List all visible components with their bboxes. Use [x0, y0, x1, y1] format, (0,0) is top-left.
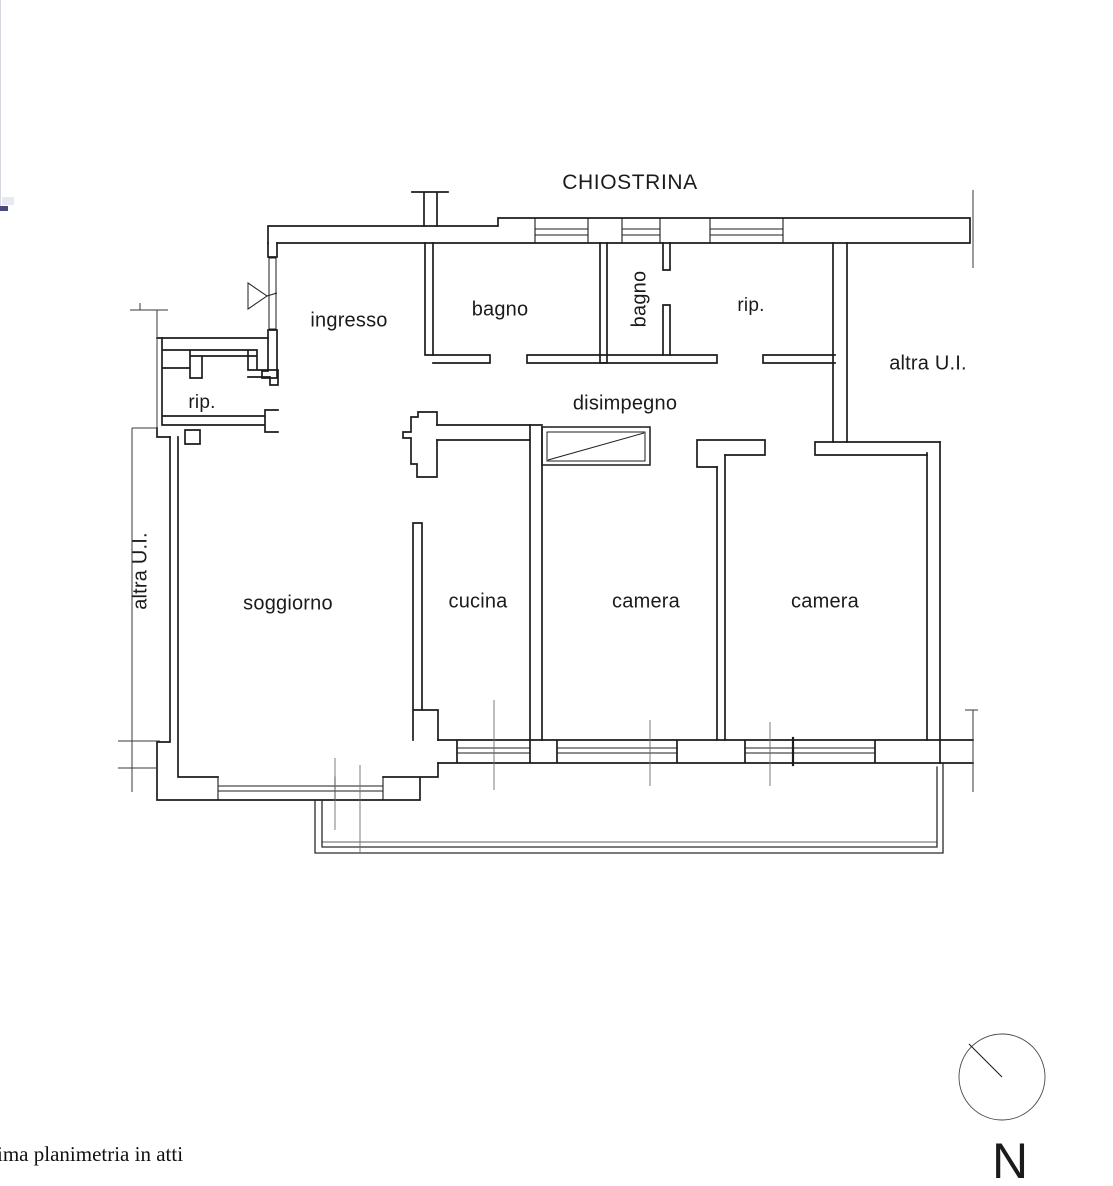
camera1-window [557, 748, 677, 753]
cucina-pilaster [403, 412, 437, 477]
rip-left-room [162, 338, 278, 432]
cucina-top-wall [437, 425, 542, 440]
room-label-rip-top: rip. [737, 295, 764, 317]
room-label-ingresso: ingresso [310, 310, 387, 333]
entrance-door [248, 258, 277, 329]
top-wall [268, 218, 970, 243]
top-window-2 [622, 219, 660, 243]
boundary-lines [118, 190, 978, 792]
floorplan-canvas: CHIOSTRINA ingresso bagno bagno rip. alt… [0, 0, 1113, 1186]
room-label-bagno-2: bagno [629, 271, 652, 328]
disimpegno-north-wall [433, 355, 835, 363]
windows-layer [218, 219, 875, 800]
room-label-soggiorno: soggiorno [243, 593, 333, 616]
compass [959, 1034, 1045, 1120]
camera2-window [745, 748, 875, 753]
camera2-top-wall [697, 440, 940, 467]
walls-layer [157, 192, 973, 800]
south-wall-band [438, 740, 973, 763]
room-label-bagno-1: bagno [472, 299, 529, 322]
north-label: N [992, 1132, 1028, 1186]
camera-divider-wall [717, 455, 725, 740]
room-label-disimpegno: disimpegno [573, 393, 677, 416]
room-label-cucina: cucina [448, 591, 507, 614]
top-window-1 [535, 219, 588, 243]
room-label-altra-ui-left: altra U.I. [130, 532, 153, 610]
cucina-divider-wall [413, 523, 438, 740]
soggiorno-window [218, 777, 383, 800]
entrance-arrow-icon [248, 283, 267, 309]
bagno-divider [600, 243, 607, 363]
wardrobe-closet [542, 427, 650, 465]
soggiorno-walls [157, 437, 438, 800]
top-window-3 [710, 219, 783, 243]
camera1-west-wall [530, 425, 542, 740]
chimney-stack [412, 192, 448, 226]
north-needle [969, 1044, 1002, 1077]
rip-top-east-wall [833, 243, 847, 442]
floorplan-drawing [0, 0, 1113, 1186]
bagno2-east-wall [663, 243, 670, 355]
camera2-east-wall [927, 442, 940, 763]
room-label-rip-left: rip. [188, 392, 215, 414]
ingresso-bagno-divider [425, 243, 433, 355]
footer-note: ima planimetria in atti [0, 1142, 183, 1167]
room-label-camera-2: camera [791, 591, 859, 614]
chiostrina-title: CHIOSTRINA [562, 171, 698, 195]
cucina-window [457, 748, 530, 753]
edge-marks [0, 0, 14, 211]
room-label-camera-1: camera [612, 591, 680, 614]
room-label-altra-ui-right: altra U.I. [889, 353, 967, 376]
